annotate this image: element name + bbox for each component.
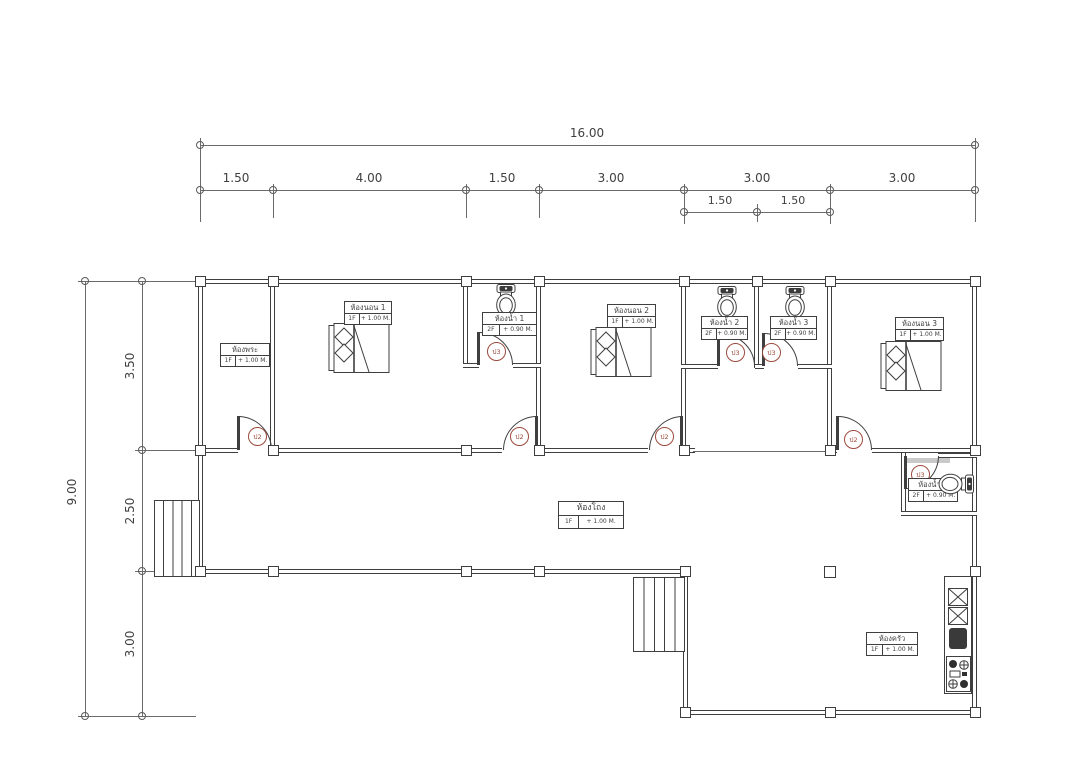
dim-line-segments-v: [142, 281, 143, 716]
door-tag-text: ป2: [253, 432, 261, 442]
room-level: + 1.00 M.: [236, 356, 269, 366]
post: [970, 566, 981, 577]
door-leaf-prayer: [237, 416, 240, 450]
post: [970, 276, 981, 287]
dim-ext: [78, 716, 196, 717]
grid-marker: [138, 446, 146, 454]
room-name: ห้องน้ำ 3: [771, 317, 816, 328]
room-name: ห้องครัว: [867, 633, 917, 644]
dim-label-seg-2: 4.00: [356, 171, 383, 185]
dim-label-seg-4: 3.00: [598, 171, 625, 185]
room-floor: 2F: [702, 329, 717, 339]
post: [268, 445, 279, 456]
bed-icon: [880, 341, 942, 391]
kitchen-sink-icon: [948, 588, 968, 625]
room-level: + 0.90 M.: [786, 329, 817, 339]
post: [970, 445, 981, 456]
room-floor: 2F: [909, 491, 924, 501]
stairs-left-entry: [154, 500, 200, 577]
dim-label-overall-width: 16.00: [570, 126, 604, 140]
toilet-icon: [715, 286, 739, 319]
dim-label-seg-5: 3.00: [744, 171, 771, 185]
grid-marker: [138, 567, 146, 575]
grid-marker: [535, 186, 543, 194]
toilet-icon: [783, 286, 807, 319]
door-leaf-bedroom3: [836, 416, 839, 450]
grid-marker: [826, 208, 834, 216]
room-label-bedroom2: ห้องนอน 2 1F+ 1.00 M.: [607, 304, 656, 328]
grid-marker: [269, 186, 277, 194]
door-tag-prayer: ป2: [248, 427, 267, 446]
post: [534, 445, 545, 456]
room-label-kitchen: ห้องครัว 1F+ 1.00 M.: [866, 632, 918, 656]
dim-line-overall-v: [85, 281, 86, 716]
post: [268, 276, 279, 287]
opening-beam-line: [693, 451, 827, 452]
grid-marker: [81, 712, 89, 720]
room-name: ห้องพระ: [221, 344, 269, 355]
room-name: ห้องโถง: [559, 502, 623, 515]
dim-label-vseg-1: 3.50: [123, 353, 137, 380]
door-tag-text: ป2: [849, 435, 857, 445]
dim-label-seg-6: 3.00: [889, 171, 916, 185]
door-tag-bath2: ป3: [726, 343, 745, 362]
exterior-wall-top: [198, 279, 977, 284]
door-tag-bedroom1: ป2: [510, 427, 529, 446]
post: [970, 707, 981, 718]
door-tag-text: ป3: [731, 348, 739, 358]
door-tag-bedroom3: ป2: [844, 430, 863, 449]
post: [679, 445, 690, 456]
room-level: + 1.00 M.: [883, 645, 917, 655]
room-name: ห้องนอน 2: [608, 305, 655, 316]
post: [268, 566, 279, 577]
grid-marker: [826, 186, 834, 194]
grid-marker: [138, 712, 146, 720]
door-tag-text: ป3: [492, 347, 500, 357]
room-name: ห้องน้ำ 2: [702, 317, 747, 328]
room-level: + 1.00 M.: [623, 317, 655, 327]
room-label-prayer: ห้องพระ 1F+ 1.00 M.: [220, 343, 270, 367]
post: [825, 707, 836, 718]
wall-bath2-bottom-a: [681, 364, 718, 369]
grid-marker: [81, 277, 89, 285]
room-level: + 1.00 M.: [579, 516, 623, 528]
post: [752, 276, 763, 287]
room-label-bath1: ห้องน้ำ 1 2F+ 0.90 M.: [482, 312, 537, 336]
room-floor: 1F: [867, 645, 883, 655]
wall-bath1-bottom-b: [513, 363, 541, 368]
room-label-bedroom1: ห้องนอน 1 1F+ 1.00 M.: [344, 301, 392, 325]
wall-corridor-3: [537, 448, 648, 453]
post: [461, 276, 472, 287]
grid-marker: [680, 208, 688, 216]
room-label-hall: ห้องโถง 1F+ 1.00 M.: [558, 501, 624, 529]
door-leaf-bath1: [477, 332, 480, 365]
room-floor: 2F: [771, 329, 786, 339]
room-level: + 0.90 M.: [500, 325, 536, 335]
dim-label-vseg-2: 2.50: [123, 498, 137, 525]
dim-label-sub-1: 1.50: [708, 194, 733, 207]
post: [825, 445, 836, 456]
post: [680, 566, 691, 577]
post: [534, 276, 545, 287]
dim-label-overall-height: 9.00: [65, 479, 79, 506]
door-tag-bath1: ป3: [487, 342, 506, 361]
post: [195, 276, 206, 287]
dim-label-vseg-3: 3.00: [123, 631, 137, 658]
door-tag-text: ป2: [660, 432, 668, 442]
grid-marker: [971, 141, 979, 149]
dim-line-segments: [200, 190, 975, 191]
kitchen-appliance: [949, 628, 967, 649]
room-level: + 0.90 M.: [717, 329, 748, 339]
dim-label-seg-3: 1.50: [489, 171, 516, 185]
dim-label-seg-1: 1.50: [223, 171, 250, 185]
wall-prayer-bedroom1: [270, 281, 275, 452]
room-floor: 2F: [483, 325, 500, 335]
room-floor: 1F: [221, 356, 236, 366]
door-leaf-bath4: [904, 456, 907, 489]
room-label-bath2: ห้องน้ำ 2 2F+ 0.90 M.: [701, 316, 748, 340]
dim-ext: [78, 281, 196, 282]
door-tag-bedroom2: ป2: [655, 427, 674, 446]
stove-icon: [946, 656, 971, 692]
grid-marker: [196, 186, 204, 194]
room-floor: 1F: [896, 330, 911, 340]
door-tag-text: ป3: [767, 348, 775, 358]
room-level: + 1.00 M.: [360, 314, 391, 324]
post: [825, 276, 836, 287]
dim-ext: [200, 138, 201, 222]
post: [679, 276, 690, 287]
door-tag-text: ป2: [515, 432, 523, 442]
room-name: ห้องน้ำ 1: [483, 313, 536, 324]
room-level: + 1.00 M.: [911, 330, 943, 340]
bed-icon: [328, 323, 390, 373]
stairs-side-entry: [633, 577, 685, 652]
dim-line-overall: [200, 145, 975, 146]
room-floor: 1F: [345, 314, 360, 324]
dim-label-sub-2: 1.50: [781, 194, 806, 207]
post: [534, 566, 545, 577]
wall-bath3-bottom-c: [798, 364, 832, 369]
post: [195, 445, 206, 456]
grid-marker: [971, 186, 979, 194]
room-name: ห้องนอน 3: [896, 318, 943, 329]
wall-bath1-left: [463, 281, 468, 368]
wall-bath4-bottom: [901, 511, 977, 516]
post: [461, 445, 472, 456]
grid-marker: [753, 208, 761, 216]
room-label-bath3: ห้องน้ำ 3 2F+ 0.90 M.: [770, 316, 817, 340]
bed-icon: [590, 327, 652, 377]
post: [680, 707, 691, 718]
exterior-wall-right: [972, 279, 977, 715]
grid-marker: [462, 186, 470, 194]
freestanding-column: [824, 566, 836, 578]
door-tag-bath3: ป3: [762, 343, 781, 362]
grid-marker: [138, 277, 146, 285]
room-floor: 1F: [608, 317, 623, 327]
floor-plan: 16.00 1.50 4.00 1.50 3.00 3.00 3.00 1.50…: [0, 0, 1080, 771]
grid-marker: [680, 186, 688, 194]
toilet-icon: [936, 471, 974, 497]
post: [195, 566, 206, 577]
grid-marker: [196, 141, 204, 149]
post: [461, 566, 472, 577]
room-label-bedroom3: ห้องนอน 3 1F+ 1.00 M.: [895, 317, 944, 341]
wall-bath2-bath3: [754, 281, 759, 368]
dim-ext: [975, 138, 976, 222]
room-floor: 1F: [559, 516, 579, 528]
room-name: ห้องนอน 1: [345, 302, 391, 313]
